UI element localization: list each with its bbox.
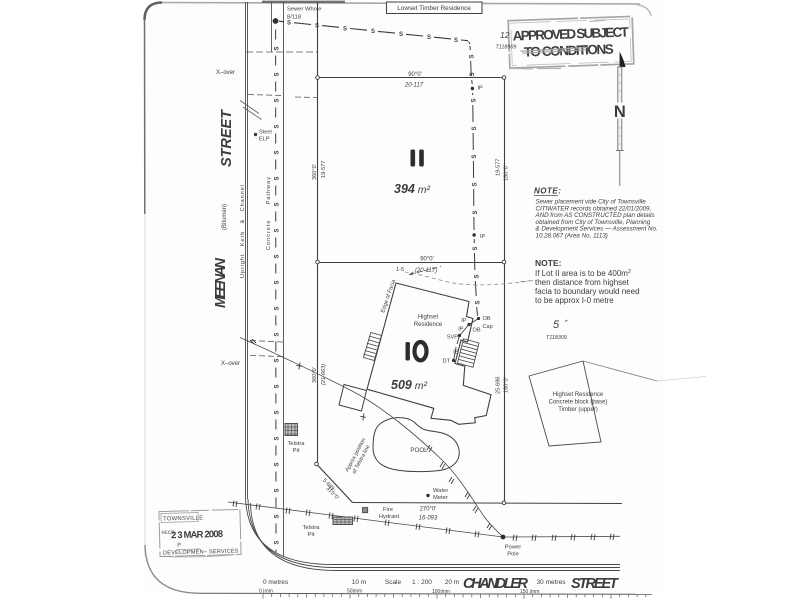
svg-text:S: S [274, 436, 280, 440]
svg-text:S: S [473, 246, 479, 250]
svg-text:Concrete block (base): Concrete block (base) [549, 400, 608, 406]
svg-text:Highset: Highset [418, 315, 439, 321]
svg-text:S: S [274, 98, 280, 102]
svg-text:Hydrant: Hydrant [379, 514, 400, 520]
svg-text:S: S [470, 72, 476, 76]
svg-text:2 3 MAR 2008: 2 3 MAR 2008 [171, 529, 223, 541]
svg-text:16·093: 16·093 [419, 516, 438, 522]
svg-text:Water: Water [433, 488, 448, 494]
svg-text:90°0′: 90°0′ [408, 72, 422, 78]
svg-text:Fire: Fire [383, 507, 393, 513]
svg-text:Power: Power [505, 545, 522, 551]
svg-text:10.28.067 (Area No. 1113): 10.28.067 (Area No. 1113) [536, 233, 608, 240]
svg-text:OB: OB [473, 328, 481, 334]
svg-text:360°0′: 360°0′ [312, 367, 318, 383]
svg-text:0 metres: 0 metres [263, 579, 289, 586]
svg-text:5: 5 [553, 319, 560, 331]
svg-text:25-686: 25-686 [496, 377, 502, 394]
svg-text:S: S [274, 228, 280, 232]
svg-text:S: S [473, 182, 479, 186]
svg-text:S: S [274, 462, 280, 466]
svg-text:S: S [274, 358, 280, 362]
svg-text:(21-663): (21-663) [321, 364, 327, 385]
svg-text:Residence: Residence [414, 322, 443, 328]
svg-text:P: P [177, 542, 181, 548]
svg-text:STREET: STREET [571, 576, 619, 592]
svg-text:CHANDLER: CHANDLER [463, 576, 529, 592]
svg-text:IP: IP [480, 234, 486, 240]
svg-text:Telstra: Telstra [287, 441, 305, 447]
svg-text:X–over: X–over [216, 70, 235, 76]
svg-text:30 metres: 30 metres [537, 579, 567, 586]
svg-text:X–over: X–over [221, 361, 240, 367]
svg-text:0 |mm: 0 |mm [259, 589, 273, 595]
svg-text:IP: IP [478, 86, 484, 92]
svg-text:MEENAN: MEENAN [213, 257, 229, 308]
svg-text:STREET: STREET [219, 109, 235, 167]
svg-text:SVP: SVP [447, 335, 458, 341]
svg-text:ELP: ELP [259, 137, 270, 143]
svg-text:S: S [274, 332, 280, 336]
svg-text:Lowset Timber Residence: Lowset Timber Residence [397, 5, 471, 12]
svg-text:19-577: 19-577 [496, 159, 502, 176]
svg-text:(Bitumen): (Bitumen) [222, 204, 228, 230]
svg-text:20-117: 20-117 [404, 83, 424, 89]
svg-text:509 m²: 509 m² [391, 378, 428, 392]
svg-text:S: S [472, 126, 478, 130]
svg-text:TOWNSVILLE: TOWNSVILLE [163, 515, 203, 522]
svg-text:S: S [470, 54, 476, 58]
svg-text:Cap: Cap [483, 324, 493, 330]
svg-text:IP: IP [461, 318, 467, 324]
svg-text:T118909: T118909 [496, 45, 517, 51]
svg-text:POOL: POOL [410, 447, 428, 454]
svg-text:1 : 200: 1 : 200 [412, 579, 432, 586]
svg-text:Meter: Meter [433, 495, 448, 501]
svg-text:360°0′: 360°0′ [312, 164, 318, 180]
svg-text:Sewer Whole: Sewer Whole [287, 7, 321, 13]
svg-text:S: S [274, 150, 280, 154]
svg-text:1-5: 1-5 [396, 267, 404, 273]
svg-text:NOTE:: NOTE: [535, 258, 562, 268]
svg-text:90°0′: 90°0′ [420, 257, 434, 263]
svg-text:S: S [287, 21, 291, 27]
svg-text:Steel: Steel [259, 130, 272, 136]
svg-text:180°0′: 180°0′ [504, 165, 510, 181]
svg-text:S: S [274, 124, 280, 128]
svg-text:to be approx I-0 metre: to be approx I-0 metre [535, 296, 614, 305]
svg-text:180°0′: 180°0′ [504, 377, 510, 393]
svg-text:S: S [274, 488, 280, 492]
svg-text:Pole: Pole [507, 552, 519, 558]
svg-text:S: S [315, 23, 319, 29]
svg-text:50|mm: 50|mm [347, 589, 362, 595]
svg-text:S: S [371, 29, 375, 35]
svg-text:19-577: 19-577 [321, 161, 327, 178]
svg-text:S: S [274, 540, 280, 544]
svg-text:Scale: Scale [385, 579, 402, 586]
svg-text:S: S [474, 274, 480, 278]
svg-text:12: 12 [500, 30, 510, 40]
svg-text:20 m: 20 m [445, 579, 459, 586]
svg-text:S: S [454, 38, 458, 44]
svg-text:S: S [274, 384, 280, 388]
svg-text:S: S [343, 26, 347, 32]
svg-text:S: S [274, 254, 280, 258]
svg-text:S: S [274, 202, 280, 206]
svg-text:N: N [614, 103, 626, 121]
svg-text:NOTE:: NOTE: [534, 187, 561, 196]
svg-text:Timber (upper): Timber (upper) [558, 407, 597, 413]
svg-text:S: S [472, 154, 478, 158]
svg-text:IP: IP [458, 327, 464, 333]
svg-text:S: S [274, 72, 280, 76]
svg-text:facia to boundary would need: facia to boundary would need [535, 287, 640, 296]
svg-text:Concrete Pathway: Concrete Pathway [266, 177, 272, 250]
svg-text:Pit: Pit [308, 532, 315, 538]
svg-text:S: S [274, 176, 280, 180]
svg-text:S: S [274, 410, 280, 414]
svg-text:then distance from highset: then distance from highset [535, 278, 630, 287]
svg-text:Highset Residence: Highset Residence [553, 392, 604, 398]
svg-text:10 m: 10 m [352, 579, 366, 586]
svg-text:100|mm: 100|mm [432, 589, 450, 595]
svg-text:S: S [274, 306, 280, 310]
svg-text:S: S [472, 98, 478, 102]
svg-text:Pit: Pit [293, 448, 300, 454]
svg-text:S: S [399, 32, 403, 38]
svg-text:S: S [476, 300, 482, 304]
svg-text:S: S [473, 210, 479, 214]
svg-text:T118309: T118309 [546, 335, 567, 341]
svg-text:S: S [274, 46, 280, 50]
svg-text:270°0′: 270°0′ [420, 507, 438, 513]
svg-text:394 m²: 394 m² [394, 182, 431, 196]
svg-text:S: S [274, 514, 280, 518]
svg-text:DT: DT [443, 359, 451, 365]
svg-text:If Lot II area is to be 400m2: If Lot II area is to be 400m2 [535, 269, 631, 278]
svg-text:(20-117): (20-117) [415, 268, 437, 274]
svg-text:S: S [274, 280, 280, 284]
svg-text:Telstra: Telstra [302, 525, 320, 531]
svg-text:S: S [427, 35, 431, 41]
svg-text:OB: OB [483, 316, 491, 322]
